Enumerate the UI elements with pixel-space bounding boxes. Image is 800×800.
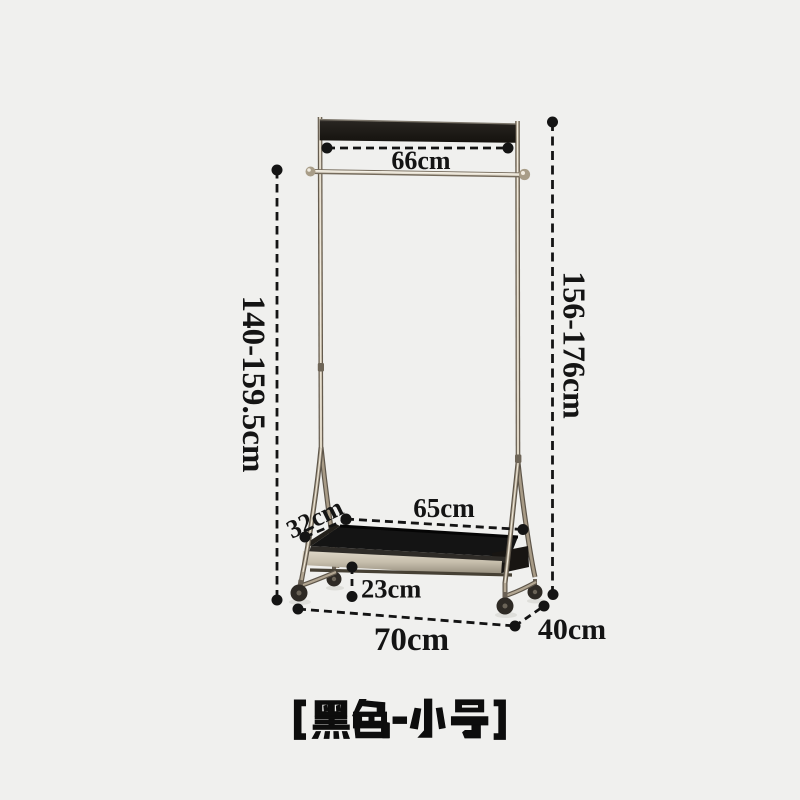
svg-text:70cm: 70cm: [374, 622, 449, 658]
svg-text:65cm: 65cm: [413, 493, 475, 523]
svg-text:156-176cm: 156-176cm: [557, 271, 593, 419]
svg-text:66cm: 66cm: [391, 146, 451, 175]
svg-text:140-159.5cm: 140-159.5cm: [235, 296, 271, 473]
svg-text:40cm: 40cm: [538, 613, 606, 646]
svg-text:23cm: 23cm: [361, 574, 421, 604]
